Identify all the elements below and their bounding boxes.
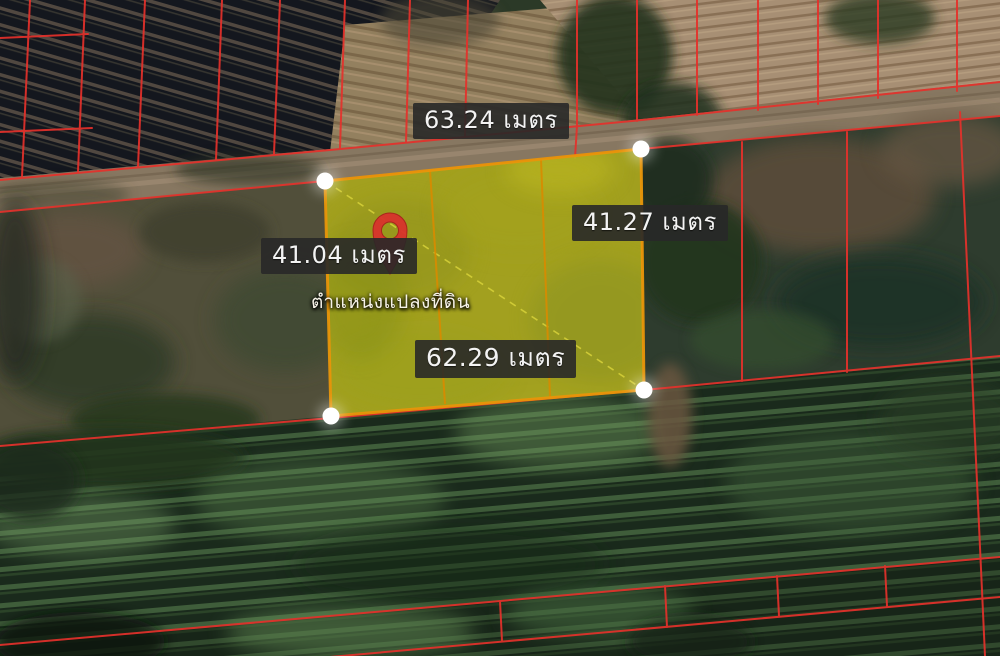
satellite-imagery	[0, 0, 1000, 656]
corner-marker-bottom-left[interactable]	[318, 403, 344, 429]
corner-marker-top-left[interactable]	[312, 168, 338, 194]
measurement-label-left: 41.04 เมตร	[261, 238, 417, 274]
highlighted-plot[interactable]	[312, 136, 670, 429]
plot-location-caption: ตำแหน่งแปลงที่ดิน	[311, 287, 470, 317]
measurement-label-top: 63.24 เมตร	[413, 103, 569, 139]
corner-marker-top-right[interactable]	[628, 136, 654, 162]
map-canvas[interactable]: 63.24 เมตร 41.27 เมตร 41.04 เมตร 62.29 เ…	[0, 0, 1000, 656]
corner-marker-bottom-right[interactable]	[631, 377, 657, 403]
measurement-label-right: 41.27 เมตร	[572, 205, 728, 241]
measurement-label-bottom: 62.29 เมตร	[415, 340, 576, 378]
